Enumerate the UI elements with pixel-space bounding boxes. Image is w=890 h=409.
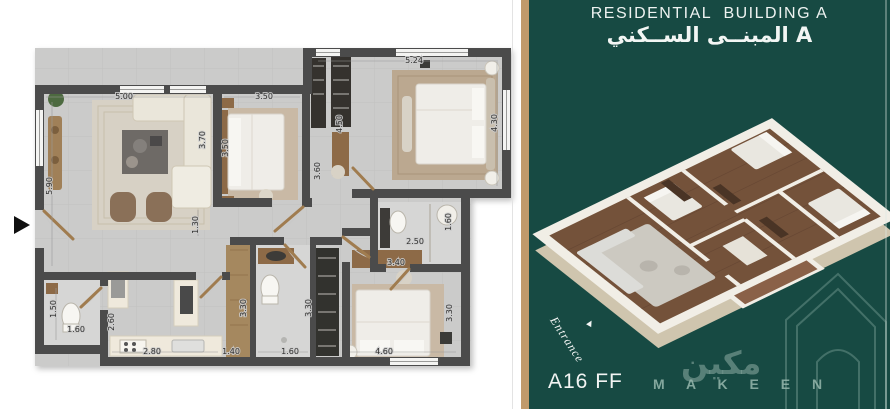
master-bedroom (392, 60, 499, 185)
dimension-label: 4.30 (490, 114, 499, 132)
vanity (380, 208, 390, 248)
armchair (110, 192, 136, 222)
dimension-label: 2.50 (406, 237, 424, 246)
linen-closet (316, 248, 339, 356)
dimension-label: 4.50 (335, 115, 344, 133)
floorplan-3d-render (532, 118, 890, 348)
bench (402, 96, 412, 152)
nightstand (222, 98, 234, 108)
render-3d-panel: RESIDENTIAL BUILDING A المبنــى الســكني… (529, 0, 890, 409)
dimension-label: 1.60 (281, 347, 299, 356)
makeen-wordmark: M A K E E N (653, 376, 831, 392)
dimension-label: 1.50 (49, 300, 58, 318)
dimension-label: 3.50 (221, 139, 230, 157)
shelving-unit (316, 248, 339, 356)
unit-code-label: A16 FF (548, 370, 623, 394)
toilet (390, 211, 406, 233)
sink (172, 340, 204, 352)
dimension-label: 5.90 (45, 177, 54, 195)
armchair (146, 192, 172, 222)
bedroom-1 (222, 98, 298, 206)
dimension-label: 3.50 (255, 92, 273, 101)
dimension-label: 5.00 (115, 92, 133, 101)
floorplan-2d-panel: 5.005.903.703.503.503.604.505.244.301.30… (0, 0, 521, 409)
dimension-label: 3.60 (313, 162, 322, 180)
panel-edge-line (512, 0, 513, 409)
stool (331, 165, 345, 179)
divider-stripe (521, 0, 529, 409)
dimension-label: 1.40 (222, 347, 240, 356)
dimension-label: 1.30 (191, 216, 200, 234)
dimension-label: 3.40 (387, 258, 405, 267)
dimension-label: 4.60 (375, 347, 393, 356)
shower-drain (281, 337, 287, 343)
floorplan-3d-art (529, 0, 890, 409)
sofa-chaise (172, 166, 211, 208)
entrance-arrow-icon (14, 216, 30, 234)
dimension-label: 5.24 (405, 56, 423, 65)
brochure-page: 5.005.903.703.503.503.604.505.244.301.30… (0, 0, 890, 409)
dimension-label: 1.60 (67, 325, 85, 334)
dimension-label: 2.60 (107, 313, 116, 331)
floorplan-2d-drawing: 5.005.903.703.503.503.604.505.244.301.30… (0, 0, 521, 409)
basin (266, 251, 286, 261)
dimension-label: 3.30 (445, 304, 454, 322)
dimension-label: 3.30 (239, 299, 248, 317)
right-edge-line (885, 0, 887, 409)
dimension-label: 3.30 (304, 299, 313, 317)
dimension-label: 1.60 (444, 213, 453, 231)
dimension-label: 3.70 (198, 131, 207, 149)
dimension-label: 2.80 (143, 347, 161, 356)
tv-unit (440, 332, 452, 344)
wardrobe (311, 58, 326, 128)
